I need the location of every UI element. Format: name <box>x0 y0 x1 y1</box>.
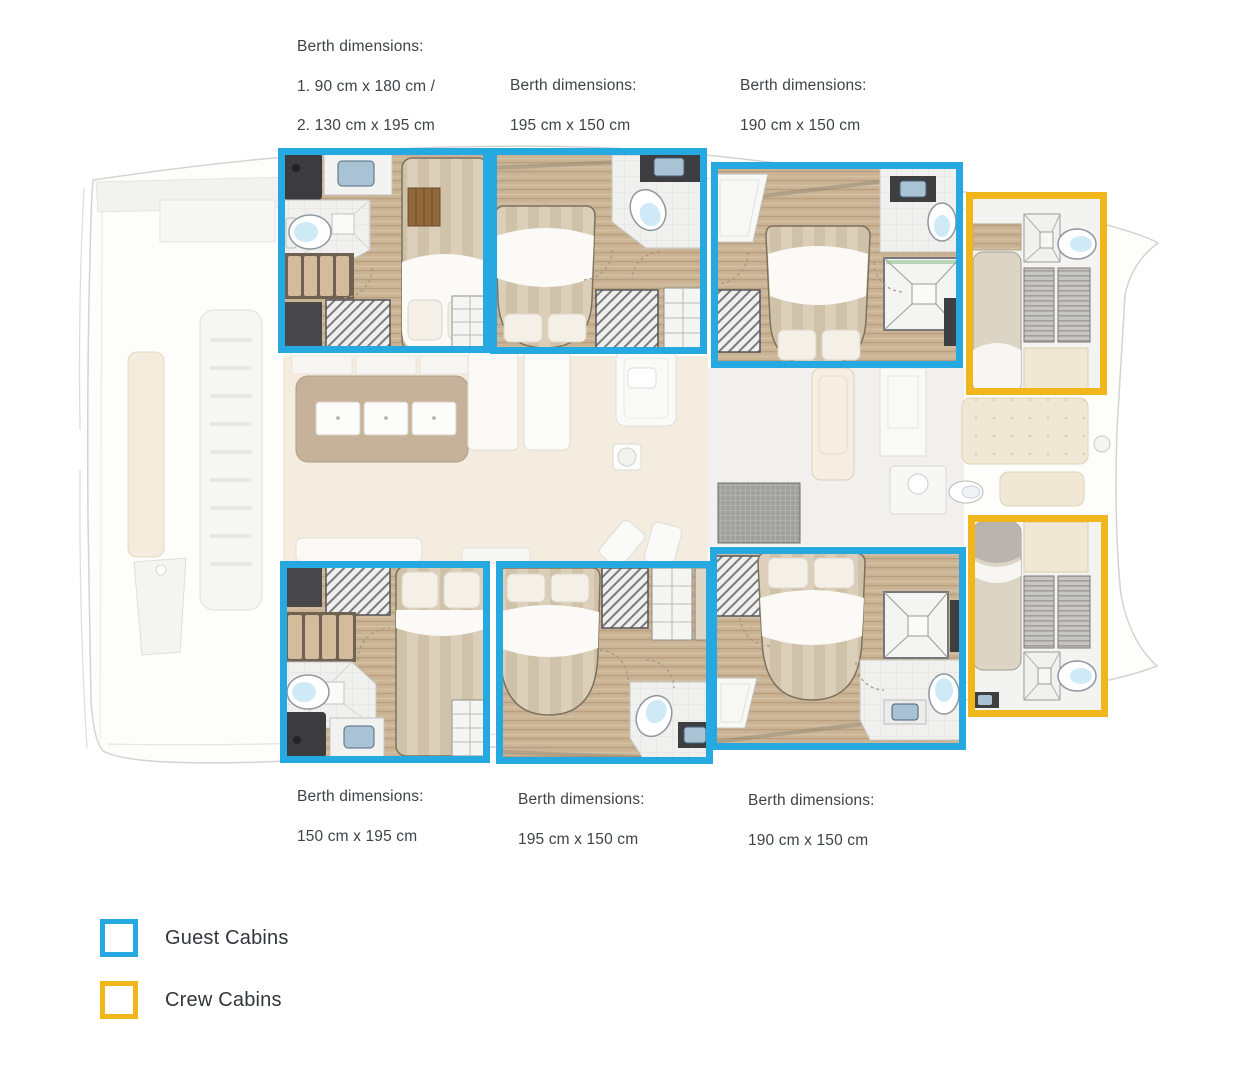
transom-edge <box>80 188 88 748</box>
helm-knob <box>156 565 166 575</box>
legend: Guest Cabins Crew Cabins <box>100 919 289 1043</box>
sunpad-small <box>1000 472 1084 506</box>
berth-annotation-top-right: Berth dimensions: 190 cm x 150 cm <box>740 77 867 156</box>
annotation-line: Berth dimensions: <box>510 77 637 95</box>
stool <box>613 444 641 470</box>
crew-cabins-swatch <box>100 981 138 1019</box>
crew-cabin-highlight-top <box>966 192 1107 395</box>
salon <box>283 350 983 570</box>
annotation-line: Berth dimensions: <box>297 788 424 806</box>
basin-top <box>628 368 656 388</box>
cockpit-bench <box>128 352 164 557</box>
legend-item-crew-cabins: Crew Cabins <box>100 981 289 1019</box>
berth-annotation-bottom-middle: Berth dimensions: 195 cm x 150 cm <box>518 791 645 870</box>
bow-fitting <box>1094 436 1110 452</box>
console-basin <box>908 474 928 494</box>
legend-label: Crew Cabins <box>165 989 282 1012</box>
deck-plan-figure: Berth dimensions: 1. 90 cm x 180 cm / 2.… <box>0 0 1245 1080</box>
berth-annotation-bottom-right: Berth dimensions: 190 cm x 150 cm <box>748 792 875 871</box>
annotation-line: 195 cm x 150 cm <box>510 117 637 135</box>
windlass <box>949 481 983 503</box>
legend-item-guest-cabins: Guest Cabins <box>100 919 289 957</box>
salon-table <box>524 350 570 450</box>
guest-cabin-highlight-top-middle <box>490 148 707 354</box>
guest-cabin-highlight-bottom-left <box>280 561 490 763</box>
forward-cabinet <box>880 368 926 456</box>
annotation-line: Berth dimensions: <box>740 77 867 95</box>
forward-sofa <box>812 368 854 480</box>
guest-cabin-highlight-top-right <box>711 162 963 368</box>
guest-cabins-swatch <box>100 919 138 957</box>
guest-cabin-highlight-top-left <box>278 148 490 353</box>
annotation-line: 190 cm x 150 cm <box>748 832 875 850</box>
annotation-line: Berth dimensions: <box>748 792 875 810</box>
salon-cabinets <box>292 356 468 374</box>
galley-modules <box>316 402 456 435</box>
legend-label: Guest Cabins <box>165 927 289 950</box>
annotation-line: 190 cm x 150 cm <box>740 117 867 135</box>
annotation-line: 150 cm x 195 cm <box>297 828 424 846</box>
salon-sofa-bottom <box>296 538 422 562</box>
berth-annotation-top-left: Berth dimensions: 1. 90 cm x 180 cm / 2.… <box>297 38 435 157</box>
guest-cabin-highlight-bottom-middle <box>496 561 713 764</box>
annotation-line: Berth dimensions: <box>518 791 645 809</box>
crew-cabin-highlight-bottom <box>968 515 1108 717</box>
salon-sofa-corner <box>468 352 518 450</box>
sunpad-large-dots <box>962 398 1088 464</box>
berth-annotation-bottom-left: Berth dimensions: 150 cm x 195 cm <box>297 788 424 867</box>
annotation-line: Berth dimensions: <box>297 38 435 56</box>
aft-cabinet <box>160 200 275 242</box>
guest-cabin-highlight-bottom-right <box>710 547 966 750</box>
shower-grate <box>718 483 800 543</box>
berth-annotation-top-middle: Berth dimensions: 195 cm x 150 cm <box>510 77 637 156</box>
annotation-line: 195 cm x 150 cm <box>518 831 645 849</box>
annotation-line: 1. 90 cm x 180 cm / <box>297 78 435 96</box>
annotation-line: 2. 130 cm x 195 cm <box>297 117 435 135</box>
